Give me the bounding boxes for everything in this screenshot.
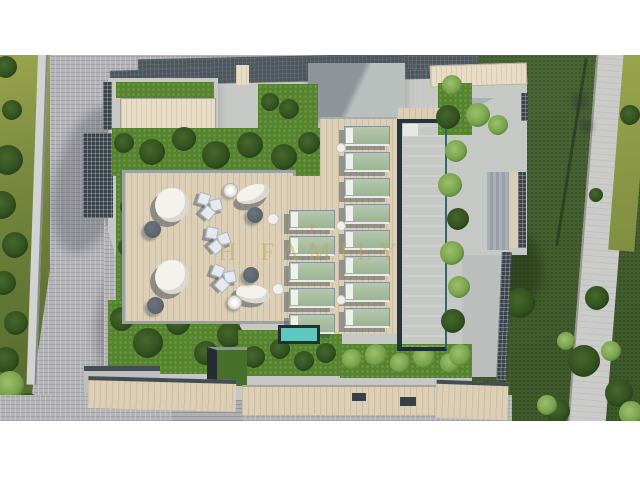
sun-lounger (344, 282, 390, 302)
bush (445, 140, 467, 162)
tree (279, 99, 299, 119)
render-image: ✦ H FAMILY (0, 0, 640, 480)
green-roof-strip (116, 82, 214, 98)
tree (133, 328, 163, 358)
watermark-ornament: ✦ (296, 219, 328, 235)
palm-tree (568, 345, 600, 377)
bush (390, 353, 410, 373)
pool-house-roof (308, 63, 405, 117)
side-table (272, 283, 284, 295)
round-daybed (155, 188, 189, 222)
sun-lounger (344, 178, 390, 198)
side-table (267, 213, 279, 225)
parasol (227, 295, 242, 310)
palm-tree (488, 115, 508, 135)
round-daybed (155, 260, 189, 294)
palm-tree (585, 286, 609, 310)
wing-deck-panel (487, 172, 509, 250)
upper-deck-strip (236, 65, 249, 85)
sun-lounger (344, 204, 390, 224)
sun-lounger (344, 152, 390, 172)
bush (441, 309, 465, 333)
ottoman (144, 221, 161, 238)
pool-step (403, 124, 418, 136)
tree (261, 93, 279, 111)
spa (278, 325, 320, 344)
parasol (223, 183, 238, 198)
sun-lounger (344, 126, 390, 146)
pergola (83, 133, 113, 218)
tree (114, 133, 134, 153)
tree (620, 105, 640, 125)
bush (619, 401, 640, 421)
roof-vent (400, 397, 416, 406)
bush (447, 208, 469, 230)
bush-shadow (579, 119, 593, 133)
bush (442, 75, 462, 95)
bush (448, 276, 470, 298)
sun-lounger (344, 308, 390, 328)
bush (589, 188, 603, 202)
aerial-photo: ✦ H FAMILY (0, 55, 640, 421)
bush (438, 173, 462, 197)
trellis (521, 93, 528, 121)
bush (601, 341, 621, 361)
ottoman (247, 207, 263, 223)
bush-shadow (572, 93, 588, 109)
sun-lounger (289, 288, 335, 308)
wing-deck-edge (509, 172, 518, 248)
pool-head-deck (397, 108, 440, 119)
tree (2, 232, 28, 258)
lower-deck-strip (88, 376, 237, 412)
letterbox-top (0, 0, 640, 55)
bush (342, 349, 362, 369)
tree (294, 351, 314, 371)
side-table (336, 143, 346, 153)
bush (537, 395, 557, 415)
tree (316, 343, 336, 363)
tree (139, 139, 165, 165)
tree (271, 144, 297, 170)
tree (172, 127, 196, 151)
tree (237, 132, 263, 158)
tree (2, 100, 22, 120)
palm-tree (466, 103, 490, 127)
ottoman (147, 297, 164, 314)
bush (440, 241, 464, 265)
side-table (336, 221, 346, 231)
upper-deck-panel (120, 98, 216, 130)
palm-tree (436, 105, 460, 129)
ottoman (243, 267, 259, 283)
tree (202, 141, 230, 169)
bush (449, 344, 471, 366)
watermark: H FAMILY (212, 239, 412, 267)
stair-structure (110, 78, 218, 133)
bush (557, 332, 575, 350)
swimming-pool (397, 119, 447, 351)
bush (365, 344, 387, 366)
roof-vent (352, 393, 366, 401)
trellis (103, 82, 112, 130)
letterbox-bottom (0, 421, 640, 480)
trellis (518, 172, 526, 248)
side-table (336, 295, 346, 305)
lower-deck-strip (435, 380, 508, 420)
tree (298, 132, 320, 154)
tree (4, 311, 28, 335)
